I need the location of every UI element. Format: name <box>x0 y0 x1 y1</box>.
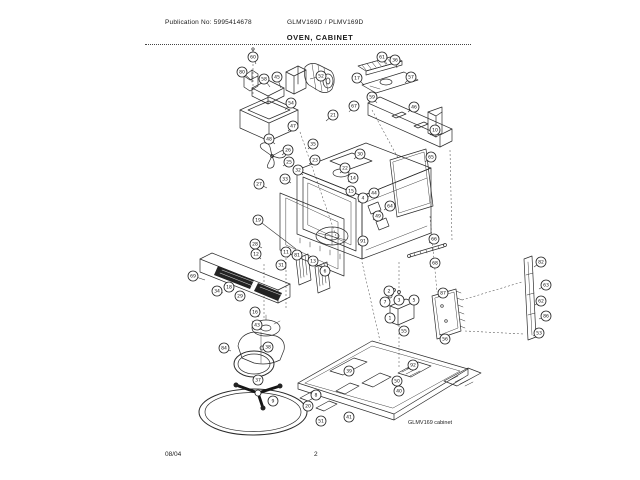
callout-balloon-16: 16 <box>250 307 260 317</box>
svg-text:91: 91 <box>360 239 366 245</box>
callout-balloon-92: 92 <box>408 360 418 370</box>
callout-balloon-43: 43 <box>252 320 262 330</box>
svg-text:82: 82 <box>538 260 544 266</box>
svg-text:47: 47 <box>290 124 296 130</box>
svg-text:9: 9 <box>272 399 275 405</box>
svg-text:87: 87 <box>440 291 446 297</box>
callout-balloon-91: 91 <box>358 236 368 246</box>
svg-text:63: 63 <box>543 283 549 289</box>
svg-text:1: 1 <box>389 316 392 322</box>
hinge-rod <box>408 244 447 258</box>
callout-balloon-40: 40 <box>394 386 404 396</box>
svg-text:12: 12 <box>253 252 259 258</box>
svg-text:69: 69 <box>190 274 196 280</box>
callout-balloon-36: 36 <box>390 55 400 65</box>
callout-balloon-38: 38 <box>263 342 273 352</box>
callout-balloon-11: 11 <box>281 247 291 257</box>
svg-text:17: 17 <box>354 76 360 82</box>
callout-balloon-4: 4 <box>358 193 368 203</box>
callout-balloon-14: 14 <box>348 173 358 183</box>
footer-date: 08/04 <box>165 451 181 458</box>
svg-text:15: 15 <box>348 189 354 195</box>
callout-balloon-55: 55 <box>399 326 409 336</box>
callout-balloon-31: 31 <box>276 260 286 270</box>
svg-text:53: 53 <box>536 331 542 337</box>
callout-balloon-13: 13 <box>308 256 318 266</box>
callout-balloon-9: 9 <box>268 396 278 406</box>
callout-balloon-6: 6 <box>320 266 330 276</box>
svg-text:39: 39 <box>346 369 352 375</box>
svg-text:25: 25 <box>286 160 292 166</box>
base-plate <box>298 341 481 420</box>
svg-text:44: 44 <box>371 191 377 197</box>
svg-text:31: 31 <box>278 263 284 269</box>
callout-leader <box>258 220 296 249</box>
callout-balloon-86: 86 <box>541 311 551 321</box>
side-trim-strip <box>524 256 536 340</box>
callout-balloon-82: 82 <box>536 257 546 267</box>
fan-blade <box>260 143 286 168</box>
callout-balloon-39: 39 <box>344 366 354 376</box>
svg-text:43: 43 <box>254 323 260 329</box>
callout-balloon-2: 2 <box>384 286 394 296</box>
svg-text:21: 21 <box>330 113 336 119</box>
callout-balloon-18: 18 <box>224 282 234 292</box>
callout-balloon-8: 8 <box>311 390 321 400</box>
svg-text:36: 36 <box>392 58 398 64</box>
svg-text:16: 16 <box>252 310 258 316</box>
svg-text:66: 66 <box>431 237 437 243</box>
svg-text:81: 81 <box>294 253 300 259</box>
svg-text:92: 92 <box>410 363 416 369</box>
callout-balloon-20: 20 <box>303 401 313 411</box>
svg-text:13: 13 <box>310 259 316 265</box>
svg-text:30: 30 <box>357 152 363 158</box>
svg-text:11: 11 <box>283 250 289 256</box>
svg-text:56: 56 <box>442 337 448 343</box>
svg-text:19: 19 <box>255 218 261 224</box>
svg-text:18: 18 <box>226 285 232 291</box>
svg-text:46: 46 <box>411 105 417 111</box>
svg-text:84: 84 <box>221 346 227 352</box>
svg-text:68: 68 <box>432 261 438 267</box>
svg-text:58: 58 <box>261 77 267 83</box>
callout-balloon-87: 87 <box>438 288 448 298</box>
svg-text:33: 33 <box>282 177 288 183</box>
callout-balloon-62: 62 <box>536 296 546 306</box>
callout-balloon-15: 15 <box>346 186 356 196</box>
callout-balloon-22: 22 <box>340 163 350 173</box>
svg-text:86: 86 <box>543 314 549 320</box>
footer-page-number: 2 <box>314 451 318 458</box>
callout-balloon-61: 61 <box>377 52 387 62</box>
mounting-plate <box>432 289 465 339</box>
svg-text:27: 27 <box>256 182 262 188</box>
callout-balloon-66: 66 <box>429 234 439 244</box>
svg-text:55: 55 <box>401 329 407 335</box>
svg-text:14: 14 <box>350 176 356 182</box>
callout-balloon-26: 26 <box>283 145 293 155</box>
callout-balloon-7: 7 <box>380 297 390 307</box>
svg-text:52: 52 <box>318 74 324 80</box>
svg-text:64: 64 <box>387 204 393 210</box>
callout-balloon-3: 3 <box>394 295 404 305</box>
callout-balloon-58: 58 <box>259 74 269 84</box>
svg-text:65: 65 <box>428 155 434 161</box>
callout-balloon-68: 68 <box>430 258 440 268</box>
callout-balloon-10: 10 <box>430 125 440 135</box>
diagram-caption: GLMV169 cabinet <box>408 420 452 426</box>
callout-balloon-46: 46 <box>409 102 419 112</box>
callout-balloon-45: 45 <box>272 72 282 82</box>
svg-text:37: 37 <box>255 378 261 384</box>
svg-text:5: 5 <box>413 298 416 304</box>
callout-balloon-21: 21 <box>328 110 338 120</box>
callout-balloon-64: 64 <box>385 201 395 211</box>
svg-text:4: 4 <box>362 196 365 202</box>
callout-balloon-63: 63 <box>541 280 551 290</box>
callout-balloon-19: 19 <box>253 215 263 225</box>
svg-text:48: 48 <box>266 137 272 143</box>
callout-balloon-52: 52 <box>316 71 326 81</box>
callout-balloon-27: 27 <box>254 179 264 189</box>
svg-text:45: 45 <box>274 75 280 81</box>
svg-text:22: 22 <box>342 166 348 172</box>
svg-text:26: 26 <box>285 148 291 154</box>
callout-balloon-49: 49 <box>373 211 383 221</box>
svg-text:54: 54 <box>288 101 294 107</box>
svg-text:3: 3 <box>398 298 401 304</box>
callout-balloon-29: 29 <box>235 291 245 301</box>
glass-tray <box>199 389 307 435</box>
callout-balloon-32: 32 <box>293 165 303 175</box>
svg-text:62: 62 <box>538 299 544 305</box>
svg-text:29: 29 <box>237 294 243 300</box>
callout-balloons: 8060584552544721671761365759464810262535… <box>188 52 551 426</box>
callout-balloon-1: 1 <box>385 313 395 323</box>
callout-balloon-81: 81 <box>292 250 302 260</box>
callout-balloon-37: 37 <box>253 375 263 385</box>
svg-text:51: 51 <box>318 419 324 425</box>
callout-balloon-67: 67 <box>349 101 359 111</box>
svg-text:80: 80 <box>239 70 245 76</box>
svg-text:67: 67 <box>351 104 357 110</box>
callout-balloon-54: 54 <box>286 98 296 108</box>
svg-text:60: 60 <box>250 55 256 61</box>
callout-balloon-35: 35 <box>308 139 318 149</box>
callout-balloon-23: 23 <box>310 155 320 165</box>
stirrer-cover <box>238 332 284 364</box>
svg-text:8: 8 <box>315 393 318 399</box>
callout-balloon-51: 51 <box>316 416 326 426</box>
callout-balloon-53: 53 <box>534 328 544 338</box>
callout-balloon-33: 33 <box>280 174 290 184</box>
svg-text:34: 34 <box>214 289 220 295</box>
svg-text:57: 57 <box>408 75 414 81</box>
callout-balloon-60: 60 <box>248 52 258 62</box>
callout-balloon-41: 41 <box>344 412 354 422</box>
callout-balloon-69: 69 <box>188 271 198 281</box>
svg-text:10: 10 <box>432 128 438 134</box>
svg-text:61: 61 <box>379 55 385 61</box>
svg-text:32: 32 <box>295 168 301 174</box>
callout-balloon-5: 5 <box>409 295 419 305</box>
callout-balloon-57: 57 <box>406 72 416 82</box>
callout-balloon-17: 17 <box>352 73 362 83</box>
svg-text:23: 23 <box>312 158 318 164</box>
exploded-diagram: 8060584552544721671761365759464810262535… <box>0 0 640 480</box>
svg-text:35: 35 <box>310 142 316 148</box>
callout-balloon-47: 47 <box>288 121 298 131</box>
svg-text:50: 50 <box>394 379 400 385</box>
svg-text:28: 28 <box>252 242 258 248</box>
callout-balloon-59: 59 <box>367 92 377 102</box>
callout-balloon-84: 84 <box>219 343 229 353</box>
callout-balloon-80: 80 <box>237 67 247 77</box>
callout-balloon-50: 50 <box>392 376 402 386</box>
svg-text:59: 59 <box>369 95 375 101</box>
svg-text:20: 20 <box>305 404 311 410</box>
callout-balloon-34: 34 <box>212 286 222 296</box>
callout-balloon-28: 28 <box>250 239 260 249</box>
svg-text:49: 49 <box>375 214 381 220</box>
callout-balloon-56: 56 <box>440 334 450 344</box>
manual-page: Publication No: 5995414678 GLMV169D / PL… <box>0 0 640 480</box>
svg-text:40: 40 <box>396 389 402 395</box>
svg-text:7: 7 <box>384 300 387 306</box>
svg-text:38: 38 <box>265 345 271 351</box>
callout-balloon-30: 30 <box>355 149 365 159</box>
callout-balloon-25: 25 <box>284 157 294 167</box>
callout-balloon-65: 65 <box>426 152 436 162</box>
svg-text:6: 6 <box>324 269 327 275</box>
callout-balloon-44: 44 <box>369 188 379 198</box>
callout-balloon-12: 12 <box>251 249 261 259</box>
svg-text:2: 2 <box>388 289 391 295</box>
svg-text:41: 41 <box>346 415 352 421</box>
callout-balloon-48: 48 <box>264 134 274 144</box>
